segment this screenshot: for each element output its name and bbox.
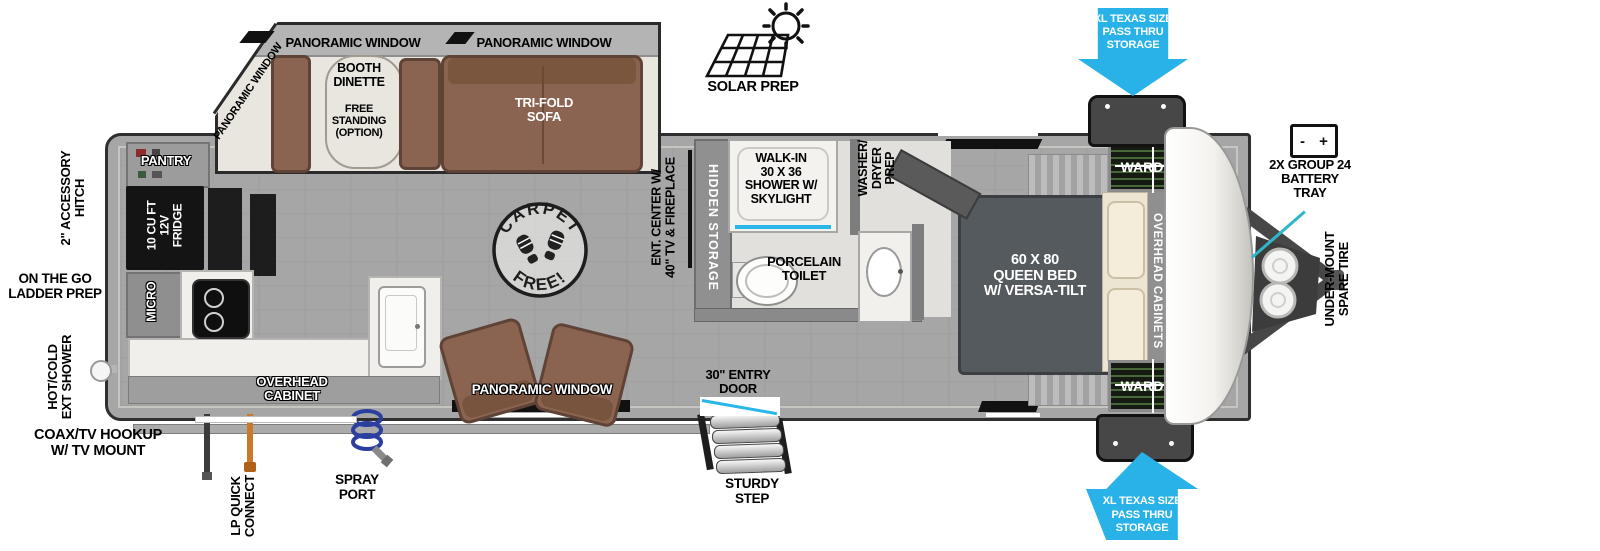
tall-cabinet [250,194,276,276]
ent-center-label: ENT. CENTER W/ 40" TV & FIREPLACE [651,132,678,304]
battery-plus: + [1319,133,1328,150]
dinette-bench-right [399,58,441,170]
awning-rail [195,416,357,423]
floorplan-diagram: CARPET FREE! HIDDEN STORAGE [0,0,1600,551]
pantry-label: PANTRY [126,154,206,168]
hidden-storage-label: HIDDEN STORAGE [706,164,720,291]
tv-fireplace-bar [688,150,692,268]
slide-window-label-2: PANORAMIC WINDOW [455,36,633,50]
battery-icon: - + [1290,124,1338,158]
cooktop [192,279,250,339]
coax-connector [202,472,212,480]
bed-platform [1028,154,1112,200]
coax-label: COAX/TV HOOKUP W/ TV MOUNT [0,428,196,459]
washer-dryer-label: WASHER/ DRYER PREP [857,129,898,207]
ward-label: WARD [1121,159,1164,175]
tall-cabinet [208,188,242,272]
battery-tray-label: 2X GROUP 24 BATTERY TRAY [1250,158,1370,200]
pass-thru-bottom-label: XL TEXAS SIZE PASS THRU STORAGE [1086,495,1198,535]
shower-label: WALK-IN 30 X 36 SHOWER W/ SKYLIGHT [722,152,840,206]
ward-label: WARD [1121,378,1164,394]
sturdy-step-label: STURDY STEP [708,477,796,506]
step-tread [712,428,782,444]
sofa-label: TRI-FOLD SOFA [492,96,596,124]
fridge-label: 10 CU FT 12V FRIDGE [146,185,185,265]
solar-prep-label: SOLAR PREP [690,80,816,96]
step-tread [716,458,786,474]
overhead-cabinet-label: OVERHEAD CABINET [200,375,384,403]
entry-door-label: 30" ENTRY DOOR [684,368,792,396]
bumper-rail [133,424,710,434]
step-tread [714,443,784,459]
pass-thru-arrow-bottom: XL TEXAS SIZE PASS THRU STORAGE [1086,452,1198,540]
pass-thru-top-label: XL TEXAS SIZE PASS THRU STORAGE [1078,13,1188,53]
window-trim [938,131,1038,136]
slide-window-label-1: PANORAMIC WINDOW [268,36,438,50]
dinette-option-label: FREE STANDING (OPTION) [320,104,398,140]
carpet-free-stamp: CARPET FREE! [488,198,592,302]
battery-minus: - [1300,133,1305,150]
dinette-bench-left [271,55,311,173]
window-trim [986,413,1040,417]
bath-sink [866,247,902,297]
bedroom-window-top [942,139,1043,149]
queen-bed-label: 60 X 80 QUEEN BED W/ VERSA-TILT [950,253,1120,300]
kitchen-sink [378,286,426,368]
bath-wall [912,224,924,320]
panoramic-window-bottom-label: PANORAMIC WINDOW [450,383,634,398]
coax-cable [204,414,210,474]
booth-dinette-label: BOOTH DINETTE [322,62,396,89]
lp-connect-label: LP QUICK CONNECT [229,463,257,549]
spray-port-label: SPRAY PORT [318,473,396,502]
micro-label: MICRO [145,270,159,334]
toilet-label: PORCELAIN TOILET [744,255,864,283]
pass-thru-arrow-top: XL TEXAS SIZE PASS THRU STORAGE [1078,8,1188,96]
spare-tire-label: UNDER-MOUNT SPARE TIRE [1323,221,1351,337]
ladder-prep-label: ON THE GO LADDER PREP [0,272,110,301]
solar-prep-icon [700,2,816,80]
ext-shower-label: HOT/COLD EXT SHOWER [46,325,74,429]
overhead-cabinets-label: OVERHEAD CABINETS [1151,213,1163,349]
bath-vanity [858,231,912,323]
shower-accent-bar [735,225,831,229]
hitch-label: 2" ACCESSORY HITCH [59,143,87,253]
ext-shower-knob [90,360,112,382]
